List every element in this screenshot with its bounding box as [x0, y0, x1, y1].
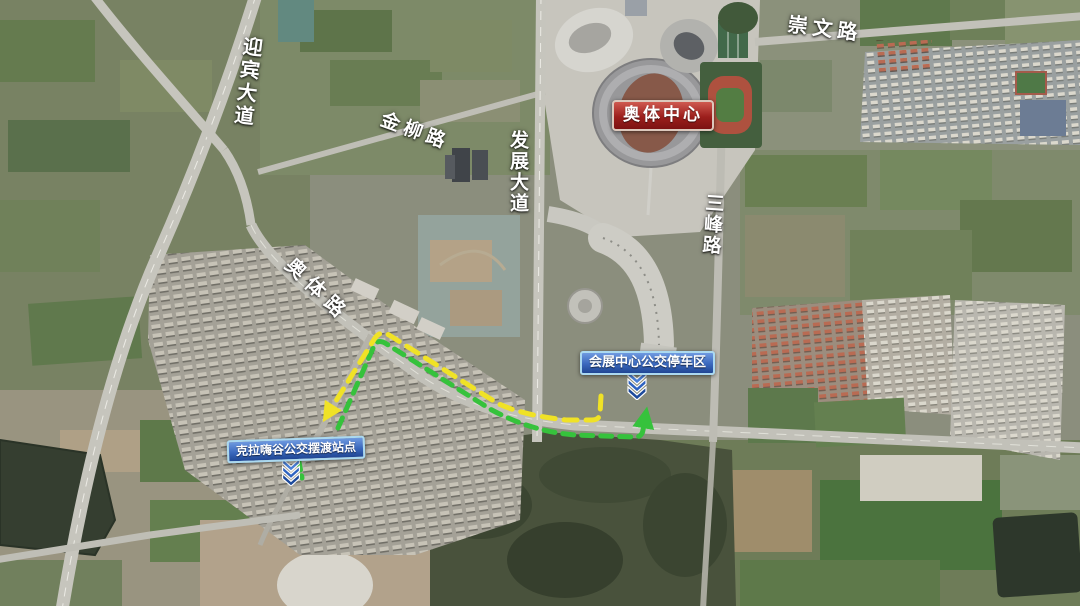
satellite-imagery	[0, 0, 1080, 606]
road-label-fazhan-avenue: 发展大道	[505, 130, 532, 214]
road-label-sanfeng-road: 三峰路	[697, 192, 728, 257]
poi-badge-olympic-center[interactable]: 奥体中心	[612, 100, 714, 131]
village-white-roofs	[862, 295, 955, 415]
poi-badge-expo-parking[interactable]: 会展中心公交停车区	[580, 351, 715, 375]
city-blocks-ne	[860, 40, 1080, 145]
satellite-map: 迎宾大道 金柳路 发展大道 奥体路 崇文路 三峰路 奥体中心 会展中心公交停车区…	[0, 0, 1080, 606]
pond-east	[992, 512, 1080, 598]
poi-badge-kela-station[interactable]: 克拉嗨谷公交摆渡站点	[227, 436, 366, 464]
modern-housing-rows	[950, 300, 1065, 460]
kela-station-marker[interactable]	[279, 458, 303, 486]
